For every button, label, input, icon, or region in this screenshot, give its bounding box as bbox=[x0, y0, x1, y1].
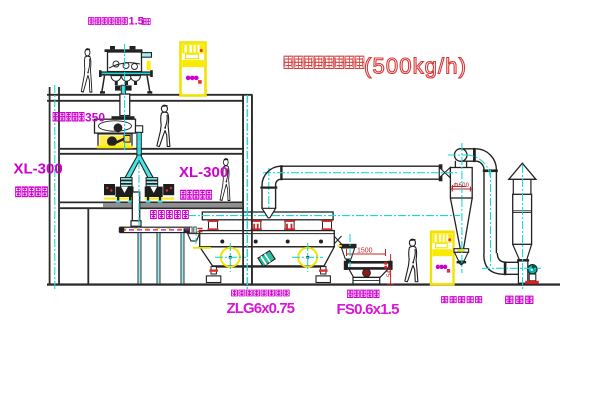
svg-text:1500: 1500 bbox=[357, 248, 373, 255]
svg-text:FS0.6x1.5: FS0.6x1.5 bbox=[337, 301, 400, 318]
svg-text:(500kg/h): (500kg/h) bbox=[364, 54, 466, 79]
svg-text:XL-300: XL-300 bbox=[179, 164, 228, 181]
svg-text:1.5: 1.5 bbox=[129, 16, 144, 28]
svg-text:350: 350 bbox=[85, 111, 105, 125]
svg-text:548: 548 bbox=[387, 266, 393, 277]
svg-text:ZLG6x0.75: ZLG6x0.75 bbox=[227, 300, 296, 317]
svg-text:XL-300: XL-300 bbox=[14, 161, 63, 178]
